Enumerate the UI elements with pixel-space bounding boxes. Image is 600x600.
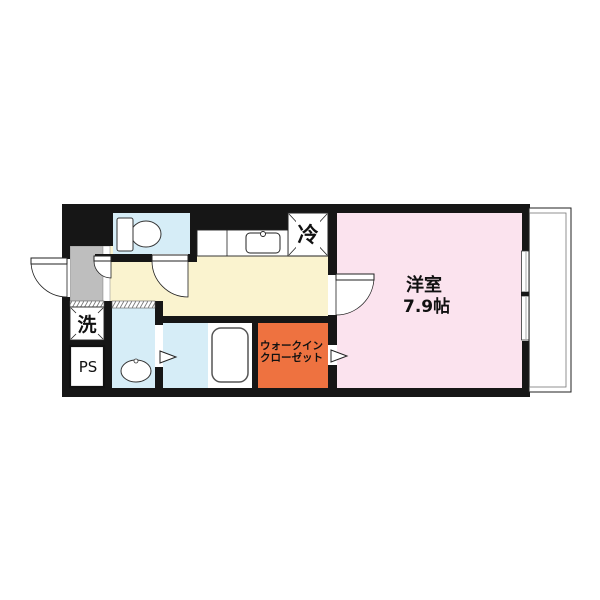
wall-above-counter xyxy=(197,213,288,230)
washer-box: 洗 xyxy=(70,307,104,340)
door-leaf-entrance xyxy=(31,258,67,264)
partition-hatch-washroom-pattern xyxy=(112,301,155,308)
washer-label: 洗 xyxy=(77,313,96,336)
wall-toilet-right xyxy=(190,204,197,262)
bathtub-icon xyxy=(212,328,248,382)
wall-bottom xyxy=(62,388,530,397)
toilet-tank xyxy=(117,218,133,251)
balcony-outer-rail xyxy=(529,208,571,392)
western-room-size: 7.9帖 xyxy=(403,296,450,317)
wall-topleft-block xyxy=(62,204,113,246)
wall-top xyxy=(62,204,530,213)
door-leaf-toilet xyxy=(152,255,188,261)
western-room-label: 洋室 xyxy=(406,274,442,296)
refrigerator-label: 冷 xyxy=(298,223,319,247)
pipe-space-box: PS xyxy=(70,346,104,387)
door-leaf-hall xyxy=(94,256,111,261)
kitchen-counter xyxy=(197,230,288,256)
walk-in-closet-label-line2: クローゼット xyxy=(260,351,323,364)
wall-above-bath-closet xyxy=(155,316,337,323)
door-leaf-western-room xyxy=(336,274,374,280)
balcony xyxy=(529,208,571,392)
floor-plan-drawing: 冷 洗 PS ウォークイン クローゼット 洋室 7.9帖 xyxy=(0,0,600,600)
floor-plan: 冷 洗 PS ウォークイン クローゼット 洋室 7.9帖 xyxy=(0,0,600,600)
toilet-bowl xyxy=(131,221,161,247)
wall-bath-closet xyxy=(252,316,258,397)
faucet-icon xyxy=(261,232,266,237)
pipe-space-label: PS xyxy=(79,358,98,376)
wall-washroom-left xyxy=(104,301,112,397)
washbasin-tap xyxy=(134,359,138,363)
refrigerator-box: 冷 xyxy=(288,213,328,256)
walk-in-closet-label-line1: ウォークイン xyxy=(260,340,323,352)
